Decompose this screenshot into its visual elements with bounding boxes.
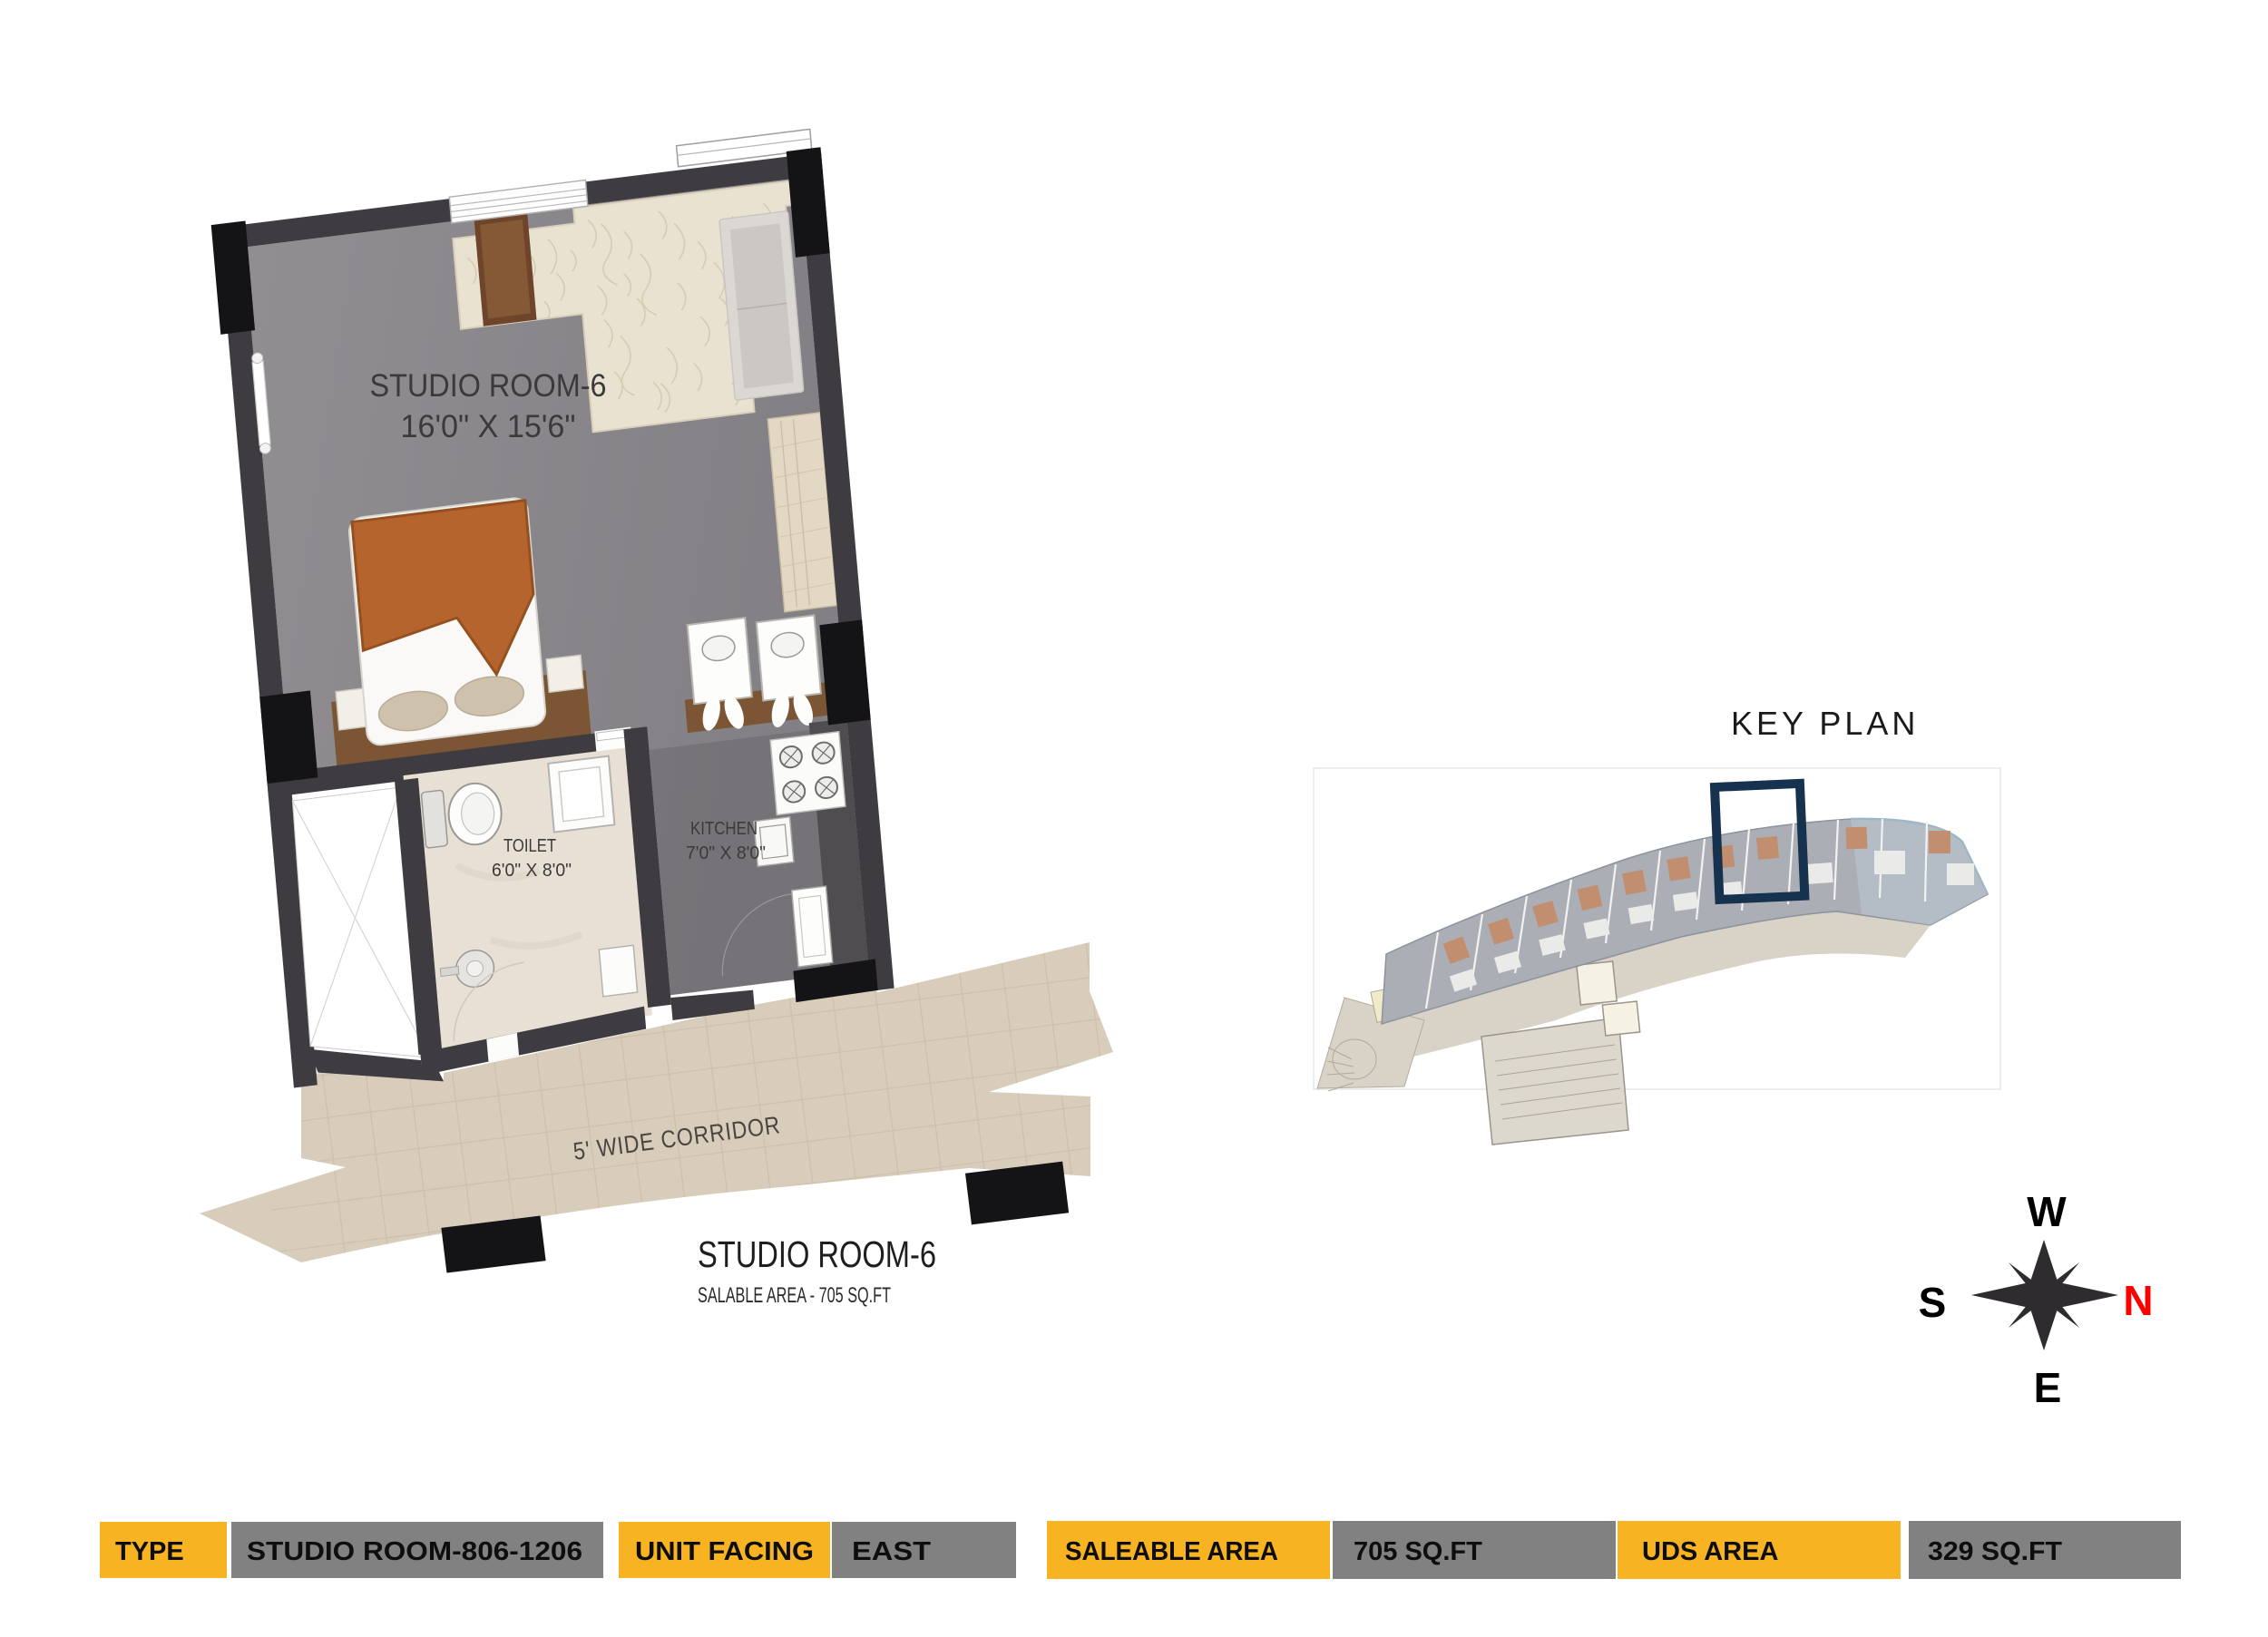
svg-text:STUDIO ROOM-6: STUDIO ROOM-6 bbox=[698, 1233, 936, 1275]
svg-text:7'0" X 8'0": 7'0" X 8'0" bbox=[686, 843, 766, 863]
svg-text:N: N bbox=[2123, 1277, 2153, 1324]
svg-text:STUDIO ROOM-806-1206: STUDIO ROOM-806-1206 bbox=[247, 1537, 582, 1566]
svg-text:16'0" X 15'6": 16'0" X 15'6" bbox=[401, 409, 576, 444]
svg-text:TYPE: TYPE bbox=[115, 1537, 184, 1566]
svg-text:STUDIO ROOM-6: STUDIO ROOM-6 bbox=[370, 368, 607, 404]
svg-text:UNIT FACING: UNIT FACING bbox=[635, 1537, 814, 1566]
svg-text:KITCHEN: KITCHEN bbox=[690, 819, 758, 839]
svg-text:SALABLE AREA - 705 SQ.FT: SALABLE AREA - 705 SQ.FT bbox=[698, 1283, 891, 1308]
svg-text:E: E bbox=[2034, 1364, 2062, 1411]
svg-text:S: S bbox=[1919, 1279, 1947, 1326]
svg-text:6'0" X 8'0": 6'0" X 8'0" bbox=[492, 861, 572, 881]
svg-text:UDS AREA: UDS AREA bbox=[1642, 1537, 1778, 1566]
svg-text:W: W bbox=[2027, 1188, 2067, 1235]
svg-text:TOILET: TOILET bbox=[503, 836, 556, 856]
svg-text:329 SQ.FT: 329 SQ.FT bbox=[1928, 1537, 2062, 1566]
svg-text:KEY PLAN: KEY PLAN bbox=[1731, 705, 1919, 742]
svg-text:SALEABLE AREA: SALEABLE AREA bbox=[1065, 1537, 1278, 1566]
svg-text:705 SQ.FT: 705 SQ.FT bbox=[1354, 1537, 1482, 1566]
svg-text:EAST: EAST bbox=[852, 1537, 931, 1566]
